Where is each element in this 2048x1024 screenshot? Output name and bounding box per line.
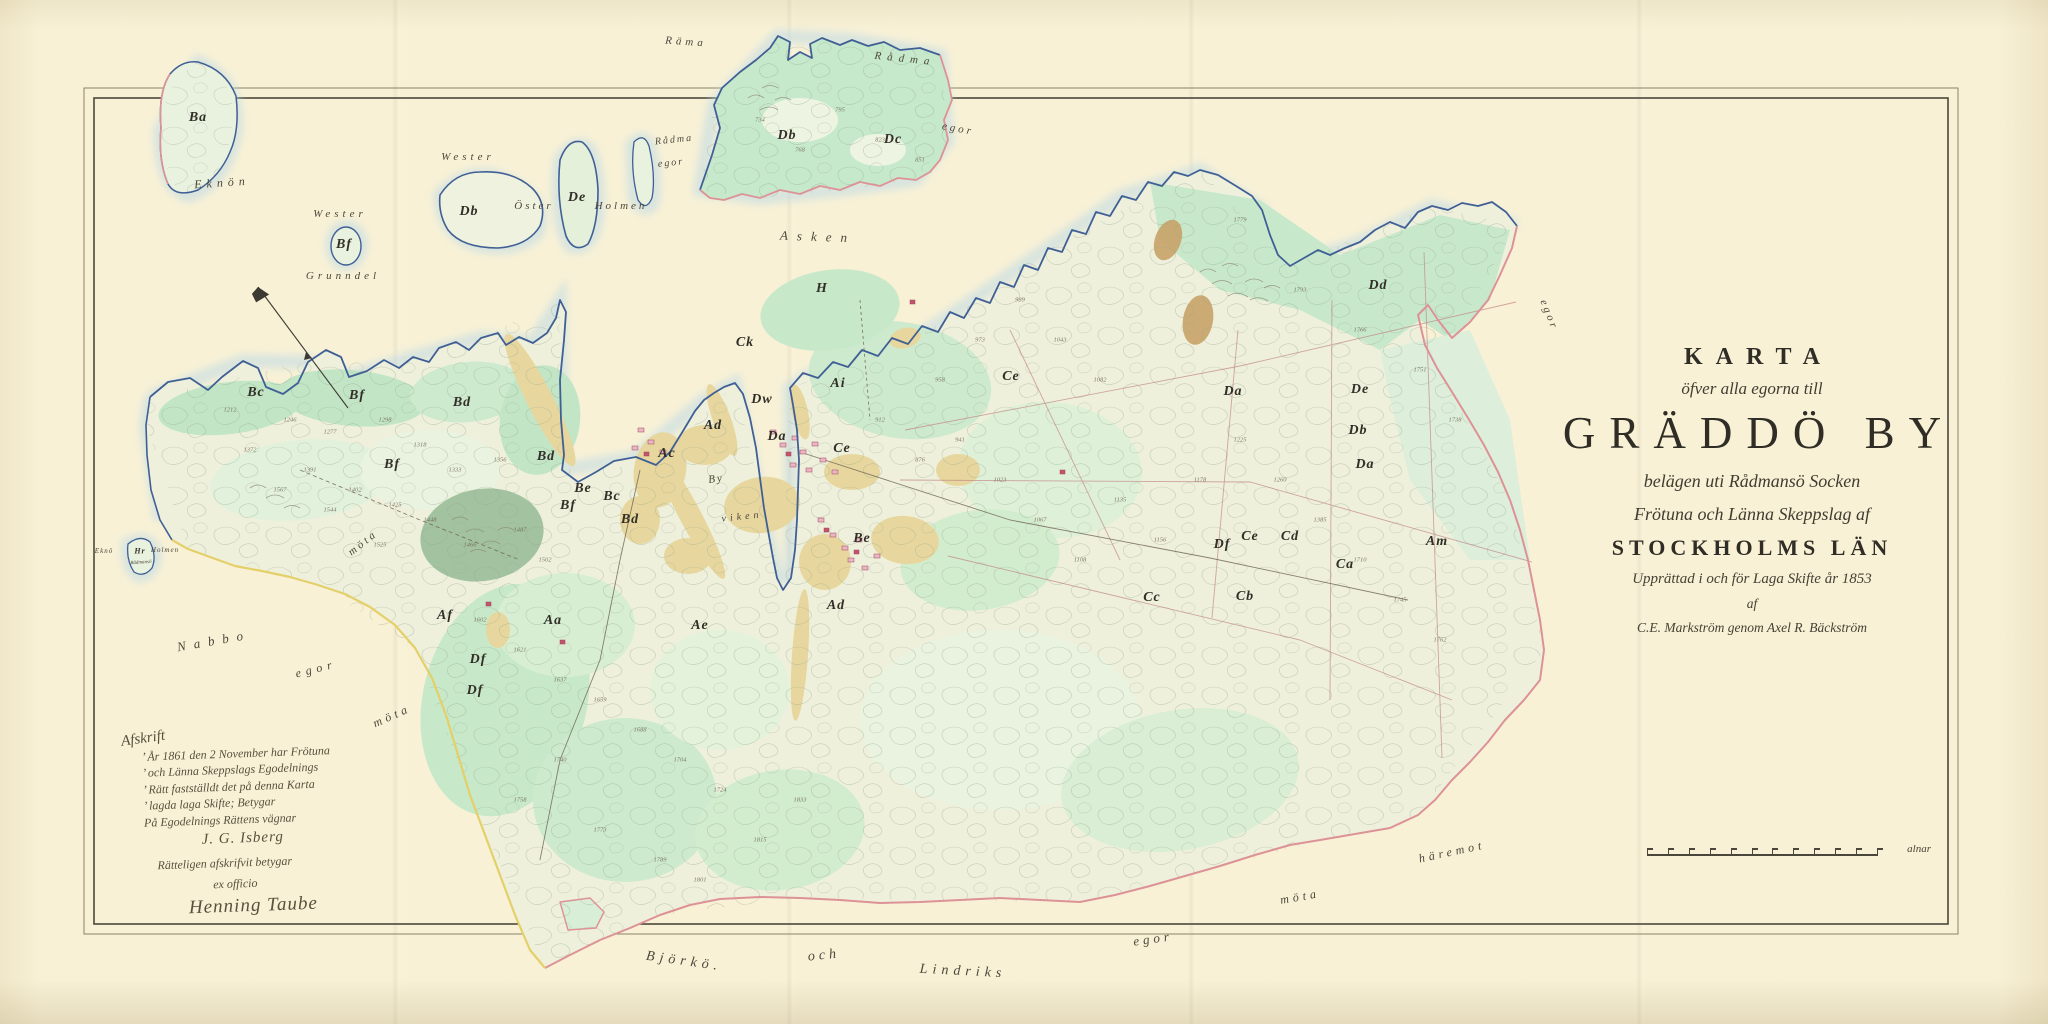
parcel-label: Bf [560,498,576,514]
parcel-number: 1043 [1054,337,1067,344]
parcel-number: 795 [835,107,845,114]
parcel-label: Am [1426,534,1448,550]
place-label: Björkö. [645,949,723,976]
parcel-label: H [816,281,828,297]
place-label: möta [1279,886,1321,908]
parcel-number: 1260 [1274,477,1287,484]
parcel-label: Ce [1241,529,1259,545]
parcel-label: Bd [453,395,471,411]
place-label: Rådma [654,133,693,148]
map-sheet: EknönWesterGrunndelWesterÖsterHolmenRäma… [0,0,2048,1024]
parcel-number: 1621 [514,647,527,654]
place-label: Nabbo [176,627,252,656]
scale-tick [1814,848,1820,856]
parcel-number: 1067 [1034,517,1047,524]
parcel-label: Be [574,481,592,497]
parcel-label: Ce [833,441,851,457]
parcel-number: 1525 [374,542,387,549]
place-label: egor [657,156,684,170]
parcel-number: 1082 [1094,377,1107,384]
scale-tick [1752,848,1758,856]
parcel-label: Dw [751,392,772,408]
parcel-number: 958 [935,377,945,384]
parcel-number: 1745 [1394,597,1407,604]
parcel-number: 1815 [754,837,767,844]
parcel-number: 912 [875,417,885,424]
parcel-number: 1659 [594,697,607,704]
place-label: Asken [780,228,857,247]
parcel-label: Ce [1002,369,1020,385]
parcel-label: Ac [658,446,676,462]
place-label: Holmen [595,200,648,212]
parcel-label: Bf [336,237,352,253]
parcel-label: Da [1223,384,1242,400]
parcel-label: Db [777,128,796,144]
place-label: Öster [514,200,553,212]
parcel-number: 1758 [514,797,527,804]
title-line-5: Frötuna och Länna Skeppslag af [1532,504,1972,525]
parcel-number: 1740 [554,757,567,764]
scale-tick [1835,848,1841,856]
parcel-number: 1108 [1074,557,1087,564]
parcel-label: Bd [537,449,555,465]
parcel-number: 1318 [414,442,427,449]
title-block: KARTA öfver alla egorna till GRÄDDÖ BY b… [1532,344,1972,636]
note-signature-isberg: J. G. Isberg [201,825,386,848]
parcel-number: 1225 [1234,437,1247,444]
parcel-number: 1724 [714,787,727,794]
parcel-number: 1801 [694,877,707,884]
parcel-number: 941 [955,437,965,444]
title-line-8: af [1532,596,1972,612]
parcel-label: Ba [189,110,207,126]
place-label: egor [1132,928,1174,949]
place-label: Lindriks [919,962,1006,983]
place-label: Rådma [874,50,936,68]
title-line-2: öfver alla egorna till [1532,379,1972,399]
place-label: häremot [1417,838,1486,867]
parcel-number: 1704 [674,757,687,764]
place-label: Wester [313,208,367,220]
parcel-label: Db [459,204,478,220]
parcel-number: 1391 [304,467,317,474]
parcel-number: 1385 [1314,517,1327,524]
place-label: Räma [665,35,707,50]
title-line-7: Upprättad i och för Laga Skifte år 1853 [1532,571,1972,588]
parcel-number: 1298 [379,417,392,424]
place-label: och [807,946,841,965]
place-label: egor [1537,298,1560,332]
parcel-label: Ca [1336,557,1354,573]
scale-tick [1793,848,1799,856]
parcel-number: 973 [975,337,985,344]
scale-bar-line [1647,854,1877,856]
parcel-label: Af [437,608,453,624]
parcel-number: 1277 [324,429,337,436]
parcel-number: 851 [915,157,925,164]
parcel-label: Bd [621,512,639,528]
parcel-number: 768 [795,147,805,154]
parcel-label: Ai [830,376,845,392]
note-lines: ’ År 1861 den 2 November har Frötuna’ oc… [113,741,386,831]
parcel-label: Df [470,652,487,668]
parcel-number: 1178 [1194,477,1207,484]
scale-unit-label: alnar [1907,843,1931,855]
certification-note: Afskrift ’ År 1861 den 2 November har Fr… [113,721,389,921]
parcel-number: 1751 [1414,367,1427,374]
scale-tick [1877,848,1883,856]
parcel-label: Ck [736,335,754,351]
parcel-number: 1738 [1449,417,1462,424]
parcel-label: Cc [1143,590,1161,606]
place-label: Eknö [95,547,113,555]
scale-tick [1710,848,1716,856]
parcel-number: 1487 [514,527,527,534]
parcel-label: Hr [134,547,145,556]
parcel-number: 1333 [449,467,462,474]
place-label: egor [294,657,338,682]
parcel-number: 1602 [474,617,487,624]
map-title-main: GRÄDDÖ BY [1532,407,1972,459]
parcel-number: 1156 [1154,537,1167,544]
scale-tick [1689,848,1695,856]
parcel-number: 1402 [349,487,362,494]
parcel-number: 989 [1015,297,1025,304]
scale-tick [1856,848,1862,856]
parcel-number: 1372 [244,447,257,454]
parcel-label: Be [853,531,871,547]
parcel-label: Ad [827,598,845,614]
parcel-number: 1567 [274,487,287,494]
place-label: viken [721,509,763,524]
scale-tick [1731,848,1737,856]
parcel-number: 1688 [634,727,647,734]
title-line-4: belägen uti Rådmansö Socken [1532,471,1972,492]
parcel-label: Df [1214,537,1231,553]
parcel-number: 1789 [654,857,667,864]
note-ex-officio: ex officio [213,871,388,892]
parcel-label: De [568,190,586,206]
parcel-number: 734 [755,117,765,124]
parcel-label: Cd [1281,529,1299,545]
parcel-label: Df [467,683,484,699]
parcel-number: 1762 [1434,637,1447,644]
parcel-label: Aa [544,613,562,629]
parcel-label: Db [1348,423,1367,439]
scale-tick [1647,848,1653,856]
place-label: Wester [441,151,495,163]
parcel-label: Dd [1368,278,1387,294]
place-label: Eknön [194,174,251,193]
place-label: egor [941,120,975,137]
parcel-number: 876 [915,457,925,464]
map-title-word: KARTA [1532,344,1972,371]
parcel-label: Bf [384,457,400,473]
parcel-label: Bc [603,489,621,505]
place-label: Grunndel [306,270,380,282]
parcel-number: 1710 [1354,557,1367,564]
parcel-number: 1502 [539,557,552,564]
parcel-number: 1135 [1114,497,1127,504]
parcel-label: Da [767,429,786,445]
parcel-label: Da [1355,457,1374,473]
scale-tick [1772,848,1778,856]
parcel-label: Cb [1236,589,1254,605]
note-attest: Rätteligen afskrifvit betygar [157,850,387,873]
parcel-number: 1773 [594,827,607,834]
title-surveyor: C.E. Markström genom Axel R. Bäckström [1532,620,1972,636]
place-label: By [707,472,724,486]
parcel-label: Bf [349,388,365,404]
parcel-number: 1212 [224,407,237,414]
place-label: Rådmansö [130,560,151,566]
parcel-number: 1793 [1294,287,1307,294]
parcel-number: 1637 [554,677,567,684]
scale-tick [1668,848,1674,856]
parcel-number: 1466 [464,542,477,549]
parcel-label: Bc [247,385,265,401]
parcel-number: 1356 [494,457,507,464]
place-label: Holmen [151,546,179,554]
scale-bar: alnar [1647,845,1887,859]
parcel-number: 1833 [794,797,807,804]
parcel-number: 1425 [389,502,402,509]
parcel-number: 1448 [424,517,437,524]
parcel-label: Ae [691,618,709,634]
parcel-number: 1766 [1354,327,1367,334]
parcel-label: Dc [884,132,902,148]
parcel-number: 823 [875,137,885,144]
title-county: STOCKHOLMS LÄN [1532,535,1972,561]
note-heading: Afskrift [120,728,166,751]
parcel-number: 1779 [1234,217,1247,224]
parcel-label: De [1351,382,1369,398]
parcel-number: 1544 [324,507,337,514]
parcel-number: 1246 [284,417,297,424]
parcel-number: 1023 [994,477,1007,484]
parcel-label: Ad [704,418,722,434]
